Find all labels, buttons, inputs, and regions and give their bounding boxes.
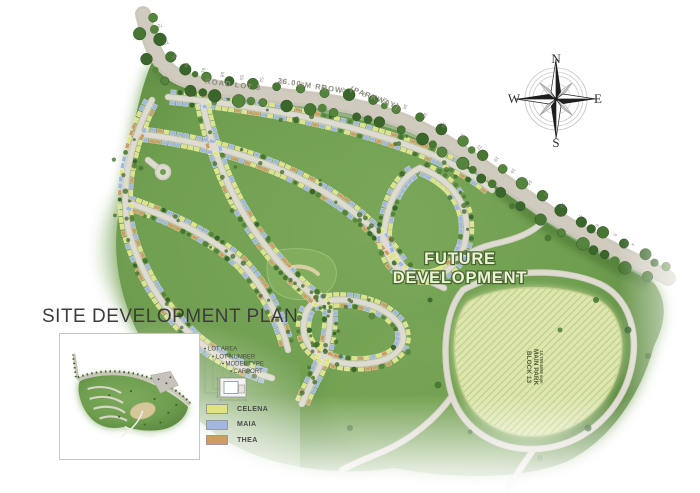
sample-lot-diagram xyxy=(216,378,246,402)
inset-location-map xyxy=(59,333,200,460)
lot-legend-diagram: LOT AREA LOT NUMBER MODEL TYPE CARPORT xyxy=(203,343,279,405)
celena-swatch xyxy=(206,404,228,414)
svg-text:52: 52 xyxy=(259,77,265,83)
page-title: SITE DEVELOPMENT PLAN xyxy=(42,306,298,328)
main-park-name: MAIN PARK xyxy=(532,349,539,386)
svg-text:5: 5 xyxy=(612,233,618,238)
callout-model-type: MODEL TYPE xyxy=(226,362,264,368)
inset-map-art xyxy=(60,334,199,459)
svg-text:58: 58 xyxy=(219,71,225,77)
svg-text:19: 19 xyxy=(493,156,500,163)
site-development-plan-page: 7270696461585552504845434037343128262219… xyxy=(0,0,700,493)
callout-lot-number: LOT NUMBER xyxy=(216,355,256,361)
main-park-label: BLOCK 13 MAIN PARK 10,799.6098 sqm xyxy=(525,349,544,386)
callout-carport: CARPORT xyxy=(234,369,264,375)
compass-rose: N S E W xyxy=(508,51,602,150)
svg-text:34: 34 xyxy=(402,103,409,110)
future-line2: DEVELOPMENT xyxy=(393,269,527,287)
main-park-block: BLOCK 13 xyxy=(525,351,532,384)
legend-item-thea: THEA xyxy=(206,435,268,445)
legend-item-maia: MAIA xyxy=(206,420,268,430)
thea-label: THEA xyxy=(237,437,258,444)
compass-east-label: E xyxy=(594,91,602,106)
compass-south-label: S xyxy=(552,135,559,150)
svg-text:16: 16 xyxy=(509,167,516,174)
legend-item-celena: CELENA xyxy=(206,404,268,414)
celena-label: CELENA xyxy=(237,406,268,413)
compass-west-label: W xyxy=(508,91,521,106)
model-color-legend: CELENA MAIA THEA xyxy=(206,404,268,445)
maia-label: MAIA xyxy=(237,421,257,428)
future-line1: FUTURE xyxy=(424,250,496,268)
compass-north-label: N xyxy=(551,51,561,66)
thea-swatch xyxy=(206,435,228,445)
svg-text:61: 61 xyxy=(200,67,206,74)
main-park-area: 10,799.6098 sqm xyxy=(539,350,544,383)
callout-lot-area: LOT AREA xyxy=(208,347,237,353)
maia-swatch xyxy=(206,420,228,430)
